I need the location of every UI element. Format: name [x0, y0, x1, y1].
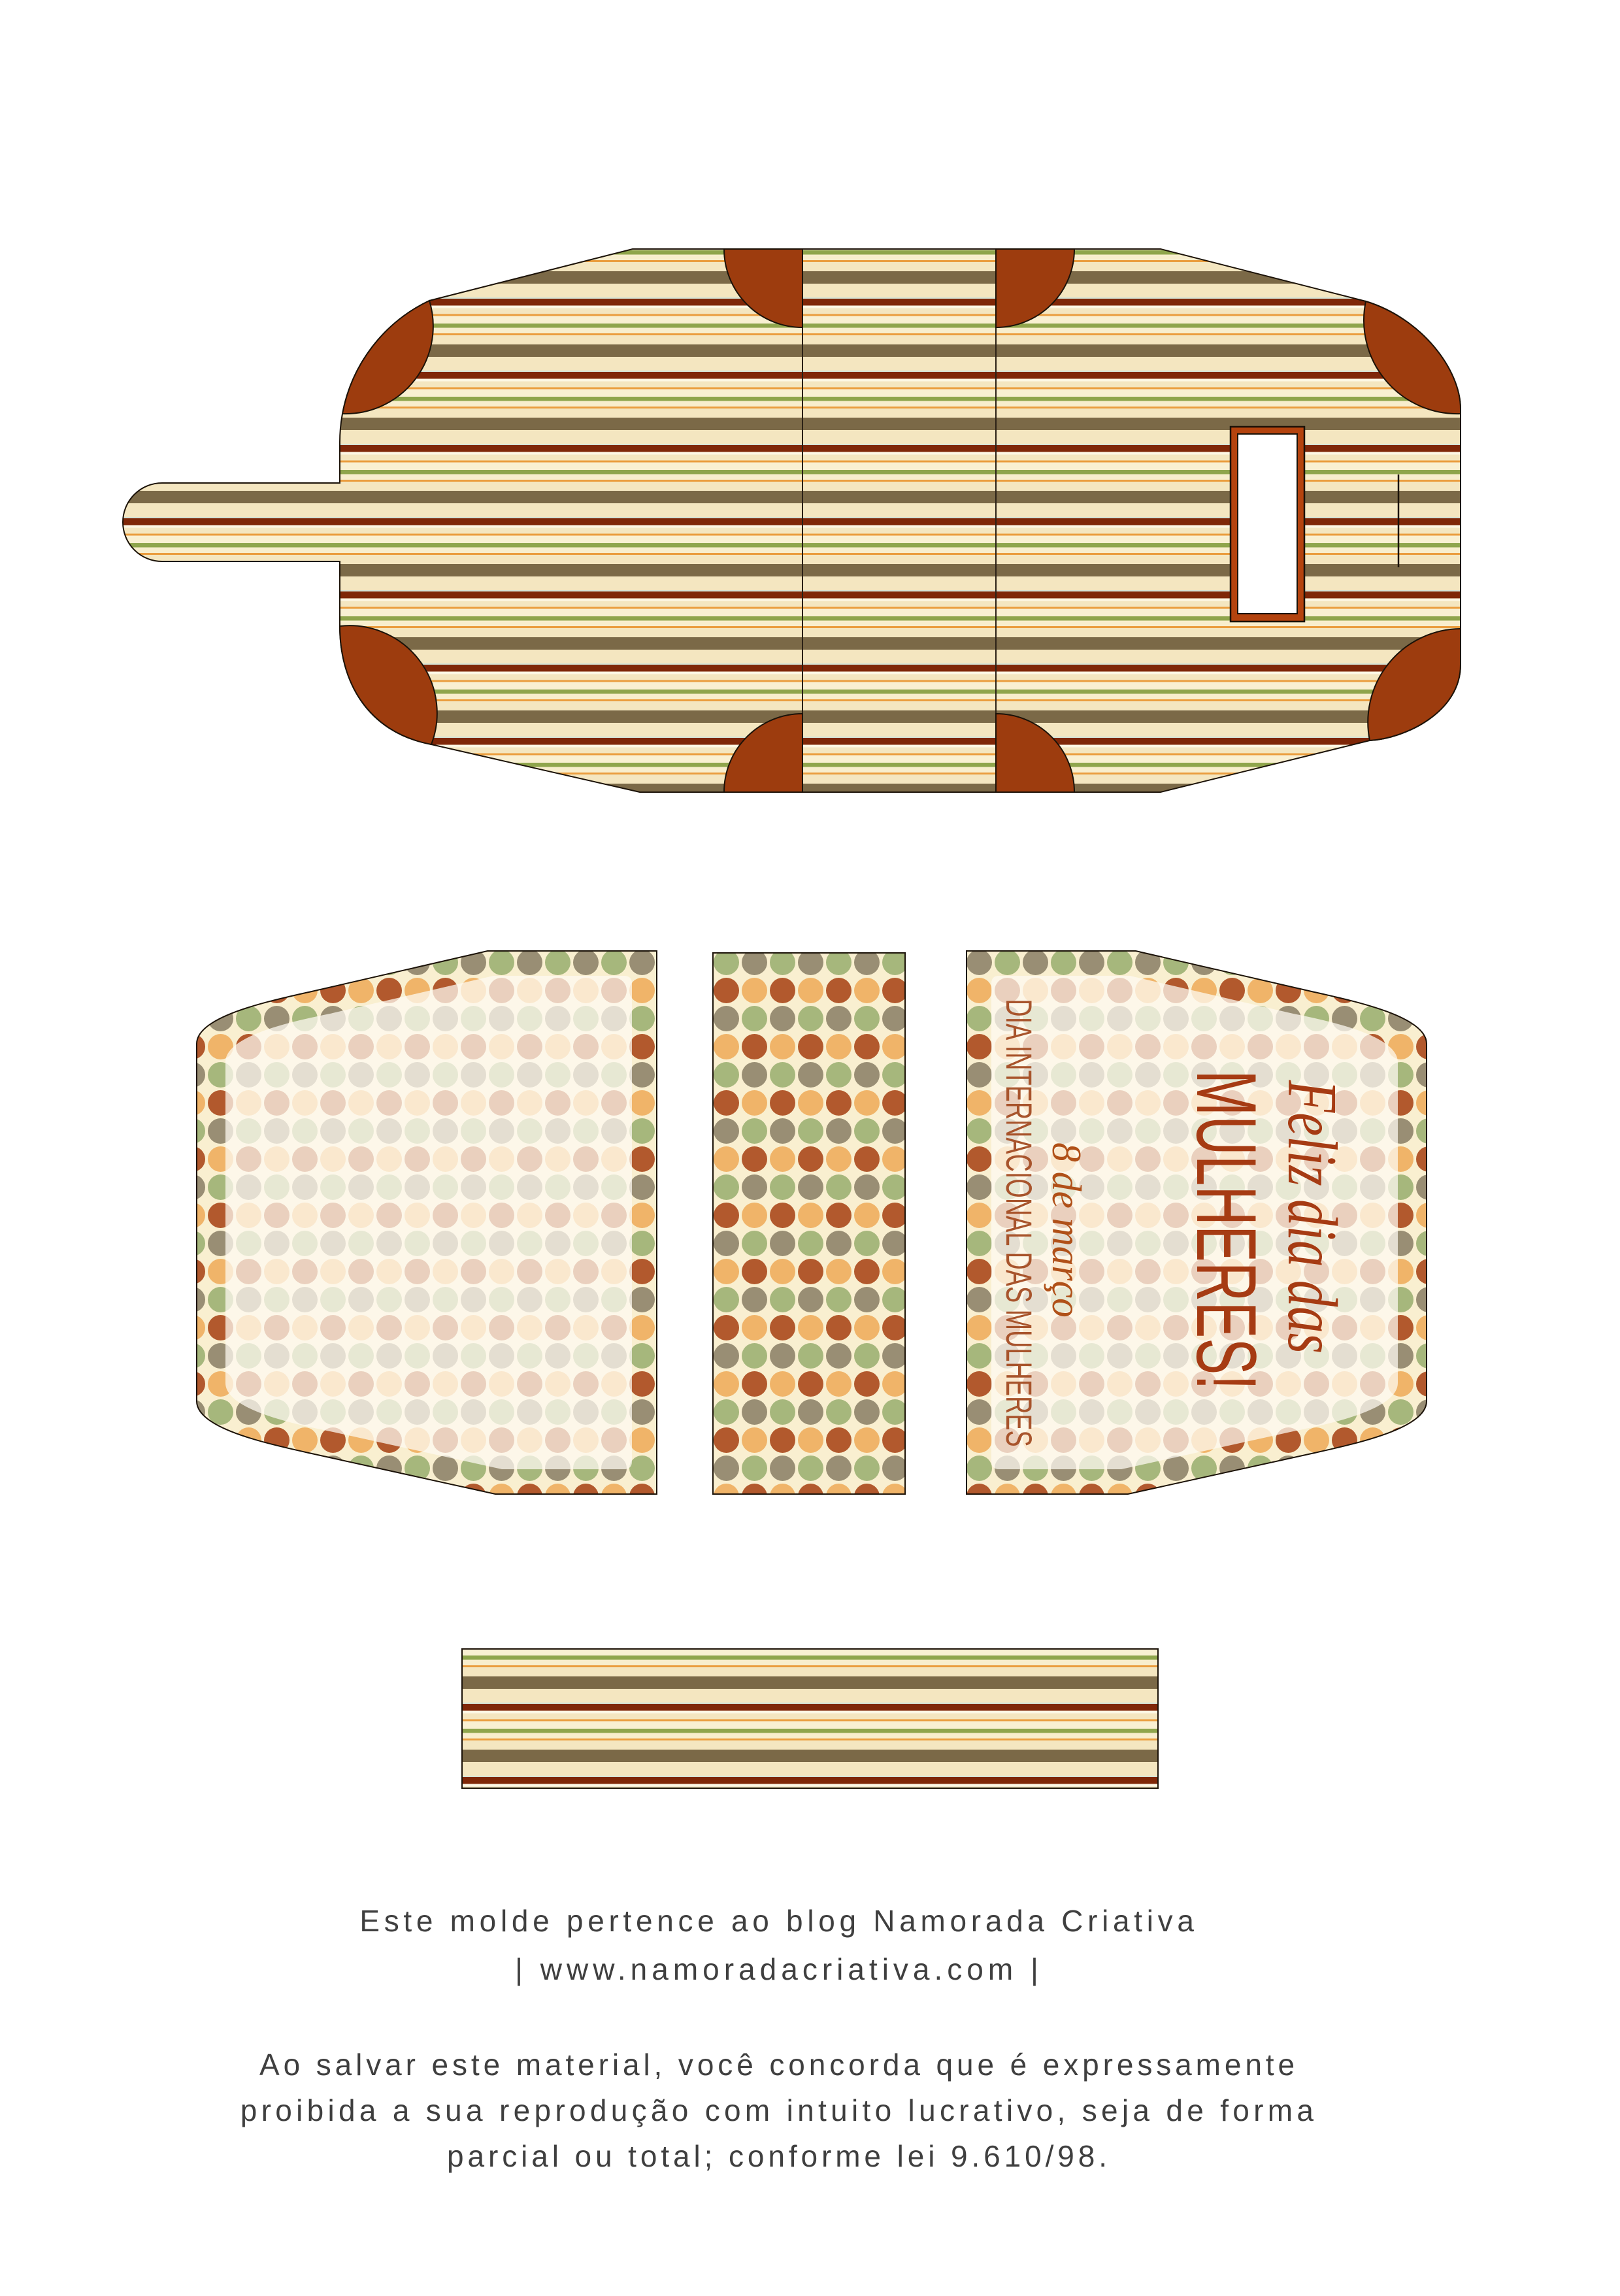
svg-text:| www.namoradacriativa.com |: | www.namoradacriativa.com |: [515, 1952, 1043, 1986]
svg-text:Este molde pertence ao blog Na: Este molde pertence ao blog Namorada Cri…: [359, 1904, 1198, 1938]
svg-text:Ao salvar este material, você: Ao salvar este material, você concorda q…: [259, 2048, 1298, 2082]
svg-text:DIA INTERNACIONAL DAS MULHERES: DIA INTERNACIONAL DAS MULHERES: [998, 999, 1038, 1446]
svg-text:MULHERES!: MULHERES!: [1178, 1070, 1273, 1389]
svg-text:8 de março: 8 de março: [1044, 1142, 1089, 1318]
svg-text:proibida a sua reprodução com: proibida a sua reprodução com intuito lu…: [240, 2093, 1318, 2127]
svg-text:Feliz dia das: Feliz dia das: [1273, 1080, 1351, 1354]
svg-text:parcial ou total; conforme lei: parcial ou total; conforme lei 9.610/98.: [447, 2139, 1111, 2173]
